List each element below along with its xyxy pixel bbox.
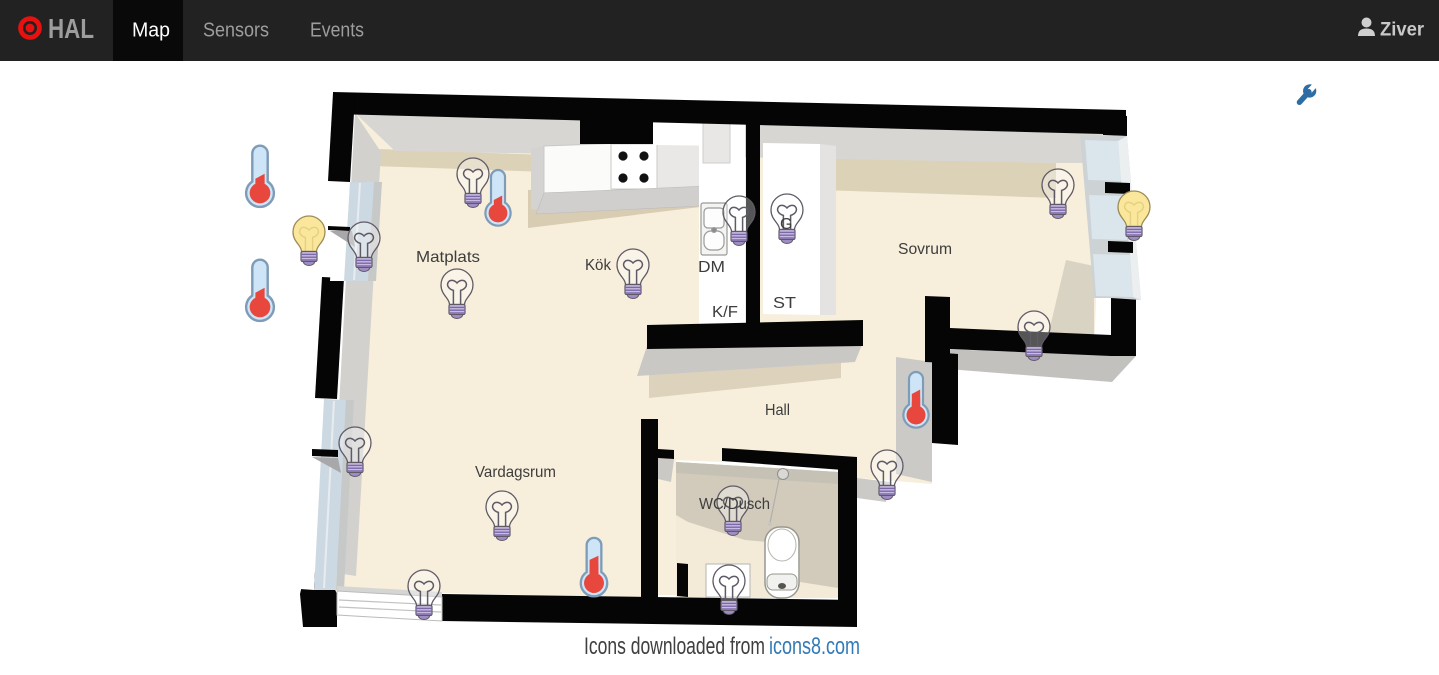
svg-text:Hall: Hall [765,402,790,419]
svg-text:Sensors: Sensors [203,20,269,42]
svg-text:Icons downloaded from: Icons downloaded from [584,633,765,660]
svg-text:G: G [780,216,792,233]
svg-text:Matplats: Matplats [416,249,480,266]
svg-text:Sovrum: Sovrum [898,241,952,258]
svg-text:ST: ST [773,295,796,312]
svg-text:Events: Events [310,20,364,42]
svg-text:WC/Dusch: WC/Dusch [699,496,770,513]
svg-text:DM: DM [698,259,725,276]
svg-text:Kök: Kök [585,257,612,274]
svg-text:Map: Map [132,20,170,42]
svg-text:Ziver: Ziver [1380,20,1425,41]
svg-text:K/F: K/F [712,304,738,321]
svg-text:HAL: HAL [48,13,94,44]
svg-text:Vardagsrum: Vardagsrum [475,464,556,481]
svg-text:icons8.com: icons8.com [769,633,860,660]
